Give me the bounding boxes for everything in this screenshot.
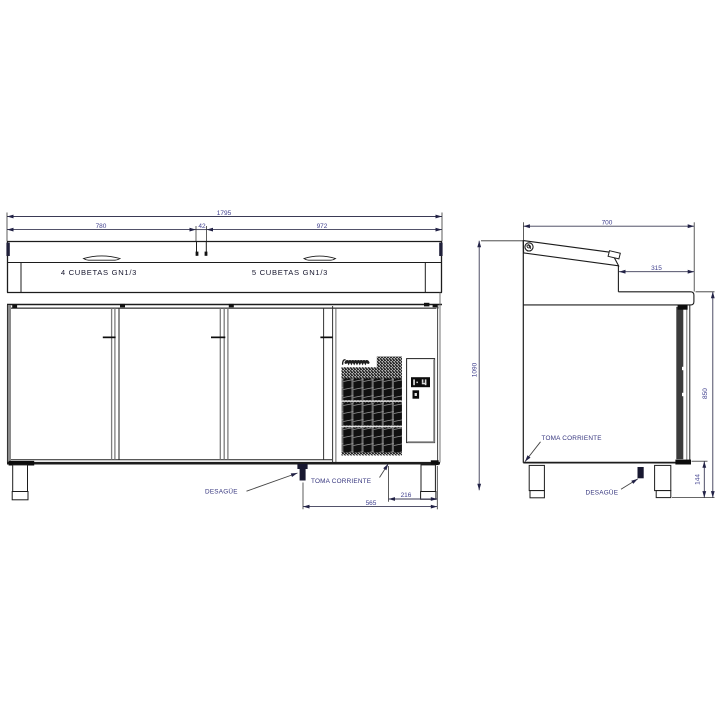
svg-text:700: 700 [602,219,613,226]
svg-text:972: 972 [317,223,328,230]
svg-text:144: 144 [695,474,702,485]
svg-text:565: 565 [366,500,377,507]
svg-text:TOMA CORRIENTE: TOMA CORRIENTE [311,478,371,485]
svg-text:42: 42 [198,223,206,230]
svg-text:DESAGÜE: DESAGÜE [586,489,619,497]
svg-text:216: 216 [401,492,412,499]
svg-text:315: 315 [651,265,662,272]
svg-text:DESAGÜE: DESAGÜE [205,488,238,496]
svg-text:850: 850 [702,388,709,399]
svg-text:5 CUBETAS GN1/3: 5 CUBETAS GN1/3 [252,268,328,277]
svg-text:1090: 1090 [471,362,478,377]
svg-text:4 CUBETAS GN1/3: 4 CUBETAS GN1/3 [61,268,137,277]
svg-text:780: 780 [96,223,107,230]
svg-text:1795: 1795 [217,210,232,217]
svg-text:TOMA CORRIENTE: TOMA CORRIENTE [542,435,602,442]
